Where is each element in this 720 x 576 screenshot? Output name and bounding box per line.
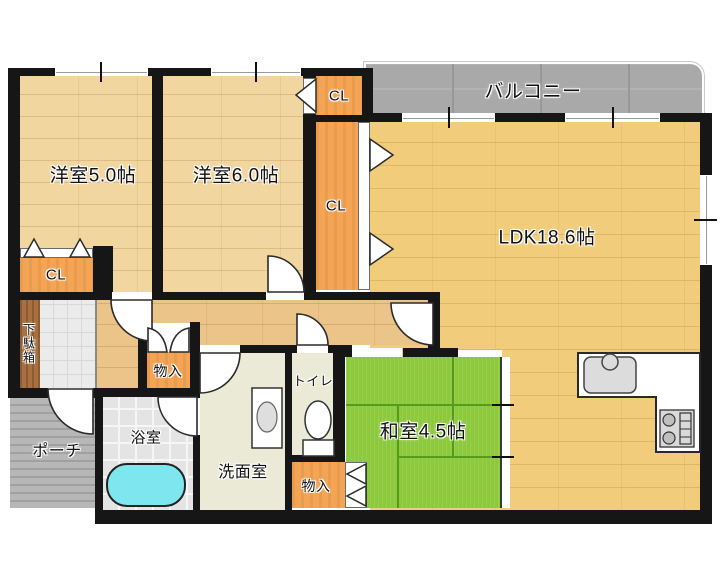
door-arc-entrance [48, 389, 93, 434]
kitchen-counter [578, 353, 700, 452]
folding-door-icon-closet-tall-2 [370, 233, 393, 265]
label-ldk: LDK18.6帖 [499, 223, 596, 250]
door-arc-hall-ldk [391, 303, 433, 345]
bathtub [107, 464, 185, 506]
folding-door-icon-storage-1 [347, 464, 366, 484]
label-western-room-5: 洋室5.0帖 [50, 161, 136, 188]
vanity-sink [252, 388, 282, 448]
double-door-left-leaf [148, 328, 167, 352]
label-shoe-cabinet: 下駄箱 [21, 323, 38, 365]
door-arc-west5 [111, 300, 152, 341]
toilet-fixture [303, 401, 334, 456]
floor-plan: 洋室5.0帖 洋室6.0帖 LDK18.6帖 和室4.5帖 バルコニー ポーチ … [0, 0, 720, 576]
label-porch: ポーチ [32, 437, 82, 461]
floor-plan-symbols [0, 0, 720, 576]
label-western-room-6: 洋室6.0帖 [193, 161, 279, 188]
folding-door-icon-closet-small [296, 79, 316, 112]
label-bathroom: 浴室 [130, 427, 161, 448]
double-door-right-leaf [170, 328, 189, 352]
label-closet-tall: CL [326, 198, 346, 215]
label-japanese-room: 和室4.5帖 [380, 417, 466, 444]
kitchen-faucet [602, 354, 618, 370]
label-storage-washitsu: 物入 [302, 476, 331, 496]
folding-door-icon-closet-tall-1 [370, 139, 393, 171]
stove [660, 410, 694, 447]
folding-door-icon-closet-west5-2 [70, 239, 90, 257]
door-arc-west6 [268, 256, 304, 292]
label-closet-small: CL [329, 88, 349, 105]
label-closet-west5: CL [46, 267, 66, 284]
folding-door-icon-closet-west5-1 [24, 239, 44, 257]
door-arc-bath [158, 397, 197, 436]
door-arc-toilet [297, 314, 328, 345]
label-toilet: トイレ [293, 371, 334, 390]
label-storage-hall: 物入 [154, 361, 183, 381]
label-balcony: バルコニー [484, 77, 581, 104]
door-arc-washroom [200, 353, 240, 393]
folding-door-icon-storage-2 [347, 486, 366, 506]
label-washroom: 洗面室 [218, 458, 268, 482]
